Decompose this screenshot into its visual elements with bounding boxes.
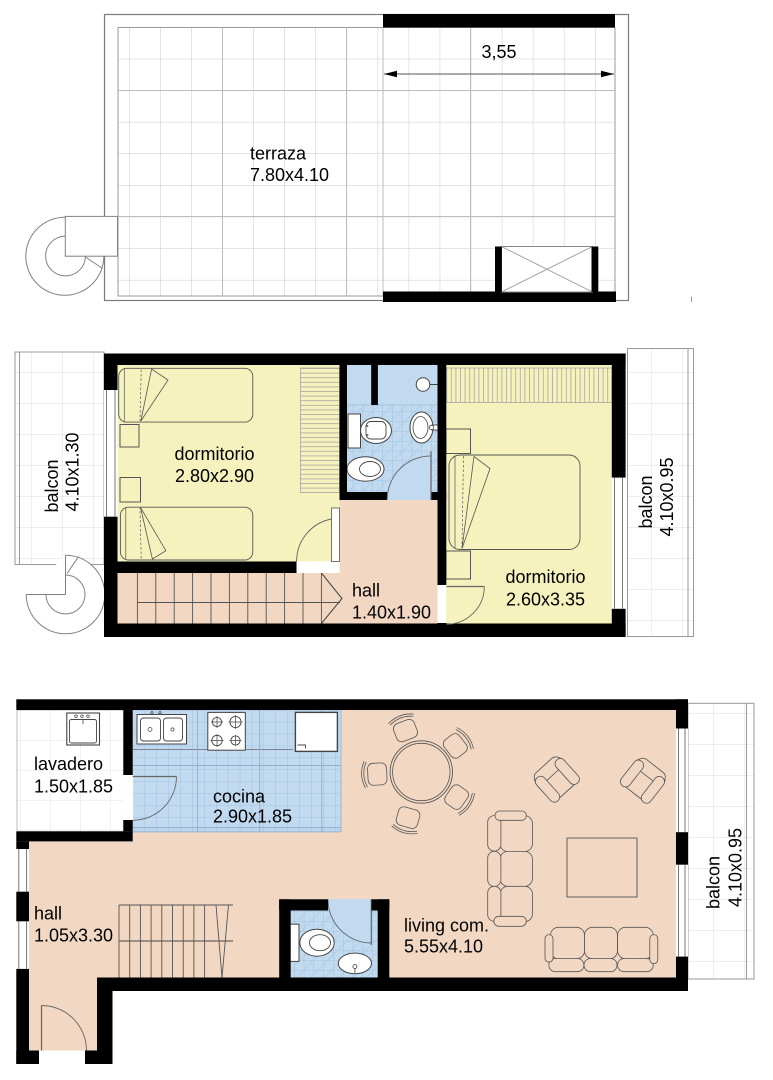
svg-text:living com.: living com. [404, 915, 489, 935]
svg-text:5.55x4.10: 5.55x4.10 [404, 937, 483, 957]
svg-text:3,55: 3,55 [481, 42, 516, 62]
svg-text:1.50x1.85: 1.50x1.85 [34, 776, 113, 796]
svg-text:2.90x1.85: 2.90x1.85 [213, 807, 292, 827]
svg-text:1.40x1.90: 1.40x1.90 [352, 603, 431, 623]
svg-text:lavadero: lavadero [34, 754, 103, 774]
svg-text:terraza: terraza [250, 144, 307, 164]
svg-text:dormitorio: dormitorio [174, 444, 254, 464]
svg-text:4.10x0.95: 4.10x0.95 [657, 457, 677, 536]
svg-text:balcon: balcon [704, 856, 724, 909]
svg-text:hall: hall [352, 581, 380, 601]
svg-text:2.60x3.35: 2.60x3.35 [506, 590, 585, 610]
svg-text:hall: hall [34, 904, 62, 924]
svg-text:4.10x1.30: 4.10x1.30 [63, 432, 83, 511]
svg-text:dormitorio: dormitorio [505, 567, 585, 587]
svg-text:2.80x2.90: 2.80x2.90 [175, 466, 254, 486]
svg-text:cocina: cocina [213, 786, 266, 806]
svg-text:balcon: balcon [42, 459, 62, 512]
svg-text:4.10x0.95: 4.10x0.95 [726, 828, 746, 907]
svg-text:7.80x4.10: 7.80x4.10 [250, 165, 329, 185]
svg-text:balcon: balcon [636, 475, 656, 528]
svg-text:1.05x3.30: 1.05x3.30 [34, 925, 113, 945]
